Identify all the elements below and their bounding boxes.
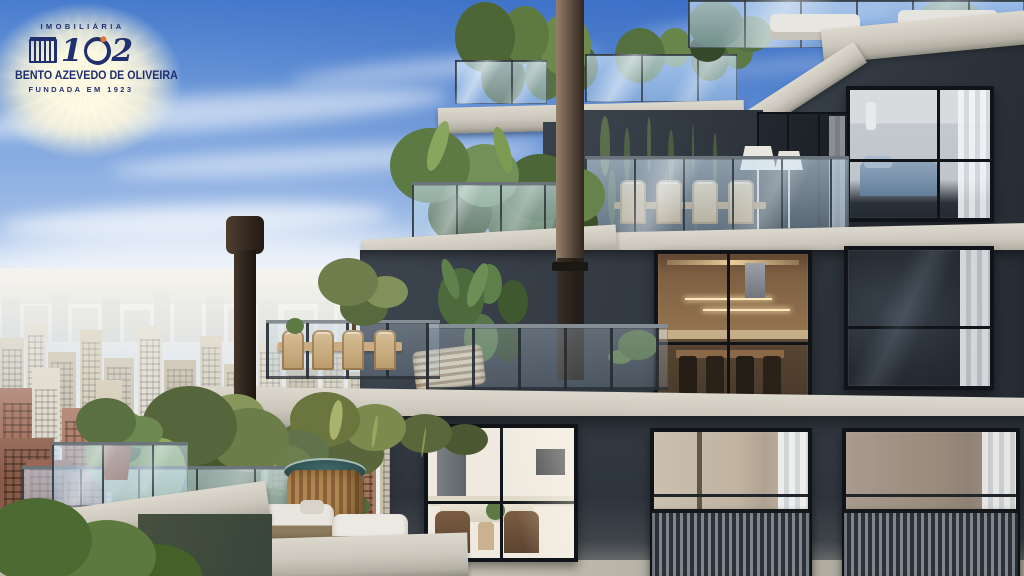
slatted-planter (844, 509, 1018, 576)
window-with-planter (842, 428, 1020, 576)
slatted-planter (652, 509, 810, 576)
chair-silhouette (679, 356, 697, 394)
terrace-chair (374, 330, 396, 370)
terrace-chair (282, 330, 304, 370)
window-mullion (850, 159, 990, 162)
ceiling-light (667, 260, 799, 265)
penthouse-glass-railing (585, 54, 737, 102)
pendant-light (703, 309, 790, 311)
logo-digit-2: 2 (112, 36, 134, 67)
brand-logo: IMOBILIÁRIA 12 BENTO AZEVEDO DE OLIVEIRA… (10, 22, 152, 94)
logo-orange-dot (99, 36, 106, 43)
chimney-bracket (552, 262, 588, 271)
chimney-pipe (234, 250, 256, 494)
window-mullion (727, 254, 730, 400)
chimney-cap (226, 216, 264, 254)
chair-silhouette (706, 356, 724, 394)
range-hood (745, 263, 765, 298)
logo-imobiliaria-text: IMOBILIÁRIA (13, 22, 152, 31)
glass-reflection (848, 250, 990, 386)
shrubs (290, 392, 360, 447)
curtain (982, 432, 1016, 509)
interior-rail (654, 494, 808, 497)
window-mullion (937, 90, 940, 218)
chair-silhouette (736, 356, 754, 394)
potted-tree-foliage (76, 398, 136, 446)
living-window (844, 246, 994, 390)
potted-plant (286, 318, 304, 334)
terrace-chair (342, 330, 364, 370)
counter (658, 330, 808, 339)
tree-canopy (318, 258, 378, 306)
kitchen-window (654, 250, 812, 404)
lower-wall (138, 514, 272, 576)
chair-silhouette (763, 356, 781, 394)
logo-company-name: BENTO AZEVEDO DE OLIVEIRA (15, 70, 147, 82)
balcony-metal-railing (426, 324, 668, 390)
curtain (958, 90, 990, 218)
logo-building-icon (29, 39, 57, 63)
logo-zero-swoosh-icon (81, 34, 114, 68)
chimney-flue (556, 0, 584, 262)
throw-cushion (300, 500, 324, 514)
logo-number: 12 (61, 36, 133, 67)
architectural-render: IMOBILIÁRIA 12 BENTO AZEVEDO DE OLIVEIRA… (0, 0, 1024, 576)
bedroom-lamp (866, 102, 876, 130)
interior-rail (846, 494, 1016, 497)
terrace-chair (312, 330, 334, 370)
window-with-planter (650, 428, 812, 576)
bedroom-window (846, 86, 994, 222)
window-mullion (658, 342, 808, 345)
penthouse-glass-railing (455, 60, 547, 104)
curtain (778, 432, 808, 509)
logo-number-row: 12 (10, 33, 152, 69)
logo-digit-1: 1 (61, 36, 83, 67)
logo-founded-text: FUNDADA EM 1923 (10, 85, 152, 94)
